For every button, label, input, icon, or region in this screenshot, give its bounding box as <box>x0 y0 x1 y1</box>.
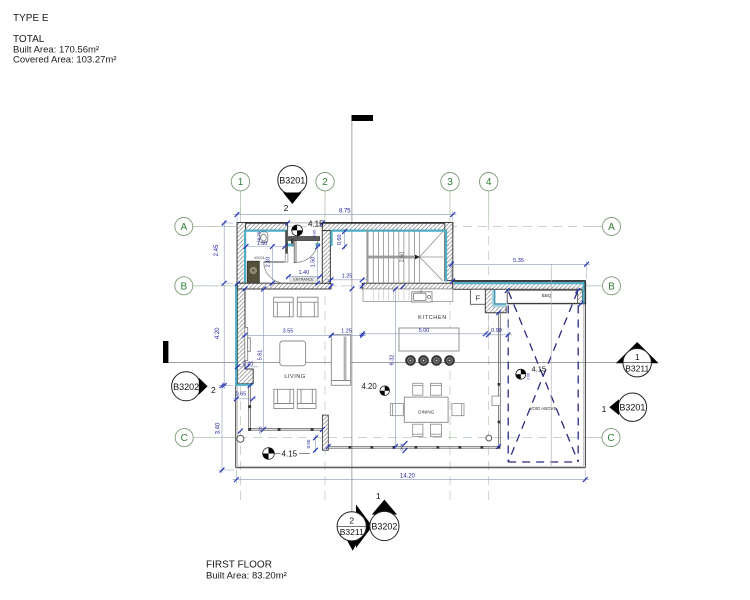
svg-text:KITCHEN: KITCHEN <box>418 315 447 321</box>
svg-text:3.40: 3.40 <box>216 422 222 434</box>
svg-text:1: 1 <box>635 352 640 362</box>
svg-text:B3202: B3202 <box>371 522 397 532</box>
svg-text:1.40: 1.40 <box>298 270 309 276</box>
svg-text:B3211: B3211 <box>625 364 649 374</box>
svg-text:8.75: 8.75 <box>339 208 351 214</box>
svg-text:WC01: WC01 <box>254 256 264 260</box>
svg-text:3: 3 <box>447 177 453 188</box>
svg-text:2: 2 <box>322 177 328 188</box>
svg-text:2: 2 <box>349 515 354 525</box>
svg-text:1: 1 <box>376 491 381 501</box>
svg-text:DINING: DINING <box>418 410 435 415</box>
svg-text:A: A <box>608 222 615 233</box>
svg-text:0.05: 0.05 <box>400 444 404 451</box>
svg-text:5.61: 5.61 <box>258 350 264 361</box>
svg-text:0.05: 0.05 <box>259 427 263 434</box>
svg-text:6.32: 6.32 <box>390 355 396 366</box>
svg-text:0.60: 0.60 <box>337 234 343 245</box>
svg-text:1.25: 1.25 <box>341 329 352 335</box>
svg-text:VOID ABOVE: VOID ABOVE <box>530 406 557 411</box>
svg-text:B3201: B3201 <box>619 403 645 413</box>
svg-text:B3211: B3211 <box>340 527 364 537</box>
svg-text:5.00: 5.00 <box>419 328 430 334</box>
svg-text:2: 2 <box>284 203 289 213</box>
svg-text:2: 2 <box>211 385 216 395</box>
svg-text:BBQ: BBQ <box>542 293 552 298</box>
svg-text:4: 4 <box>486 177 492 188</box>
svg-text:0.65: 0.65 <box>236 391 247 397</box>
svg-text:0.50: 0.50 <box>306 439 311 448</box>
svg-text:1.50: 1.50 <box>311 257 317 268</box>
svg-text:0.70: 0.70 <box>257 231 262 240</box>
svg-text:1: 1 <box>602 404 607 414</box>
svg-text:B: B <box>608 281 615 292</box>
svg-text:LIVING: LIVING <box>284 374 305 380</box>
svg-text:Covered Area: 103.27m²: Covered Area: 103.27m² <box>13 55 117 66</box>
svg-text:4.15: 4.15 <box>532 364 547 373</box>
svg-text:1.50: 1.50 <box>257 241 268 247</box>
svg-text:2.10: 2.10 <box>265 257 271 268</box>
svg-text:0.90: 0.90 <box>311 229 316 238</box>
svg-text:4.15: 4.15 <box>282 449 298 458</box>
svg-text:2.45: 2.45 <box>214 244 220 256</box>
svg-text:14.20: 14.20 <box>400 473 416 479</box>
svg-text:B3202: B3202 <box>173 382 199 392</box>
svg-text:Built Area: 83.20m²: Built Area: 83.20m² <box>206 571 287 582</box>
svg-text:0.40: 0.40 <box>243 361 254 367</box>
svg-text:1: 1 <box>238 177 244 188</box>
svg-text:TYPE E: TYPE E <box>13 13 49 24</box>
svg-text:4.20: 4.20 <box>215 327 221 339</box>
svg-text:FIRST FLOOR: FIRST FLOOR <box>206 560 272 571</box>
svg-text:1.25: 1.25 <box>342 274 353 280</box>
svg-text:2.60: 2.60 <box>400 252 406 263</box>
svg-text:3.55: 3.55 <box>283 329 294 335</box>
svg-text:C: C <box>181 433 188 444</box>
svg-text:C: C <box>607 433 614 444</box>
svg-text:2.60: 2.60 <box>527 373 531 380</box>
svg-text:5.35: 5.35 <box>513 258 524 264</box>
svg-text:F: F <box>476 294 481 303</box>
svg-text:4.20: 4.20 <box>362 382 378 391</box>
svg-text:TOTAL: TOTAL <box>13 34 45 45</box>
svg-text:0.90: 0.90 <box>491 328 502 334</box>
svg-text:4.15: 4.15 <box>308 219 324 228</box>
svg-text:A: A <box>180 222 187 233</box>
svg-text:B: B <box>180 281 187 292</box>
svg-text:B3201: B3201 <box>279 176 305 186</box>
svg-text:ENTRANCE: ENTRANCE <box>293 277 314 281</box>
